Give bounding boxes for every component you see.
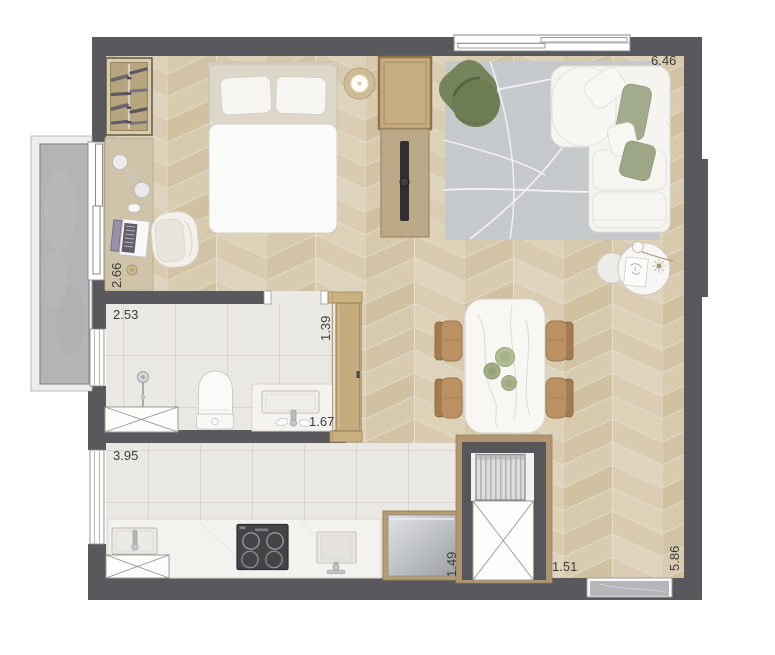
svg-text:1.67: 1.67 — [309, 414, 334, 429]
svg-text:2.53: 2.53 — [113, 307, 138, 322]
svg-text:5.86: 5.86 — [667, 546, 682, 571]
svg-text:1.49: 1.49 — [444, 552, 459, 577]
svg-text:1.51: 1.51 — [552, 559, 577, 574]
svg-text:2.66: 2.66 — [109, 263, 124, 288]
svg-text:6.46: 6.46 — [651, 53, 676, 68]
svg-text:1.39: 1.39 — [318, 316, 333, 341]
svg-text:3.95: 3.95 — [113, 448, 138, 463]
